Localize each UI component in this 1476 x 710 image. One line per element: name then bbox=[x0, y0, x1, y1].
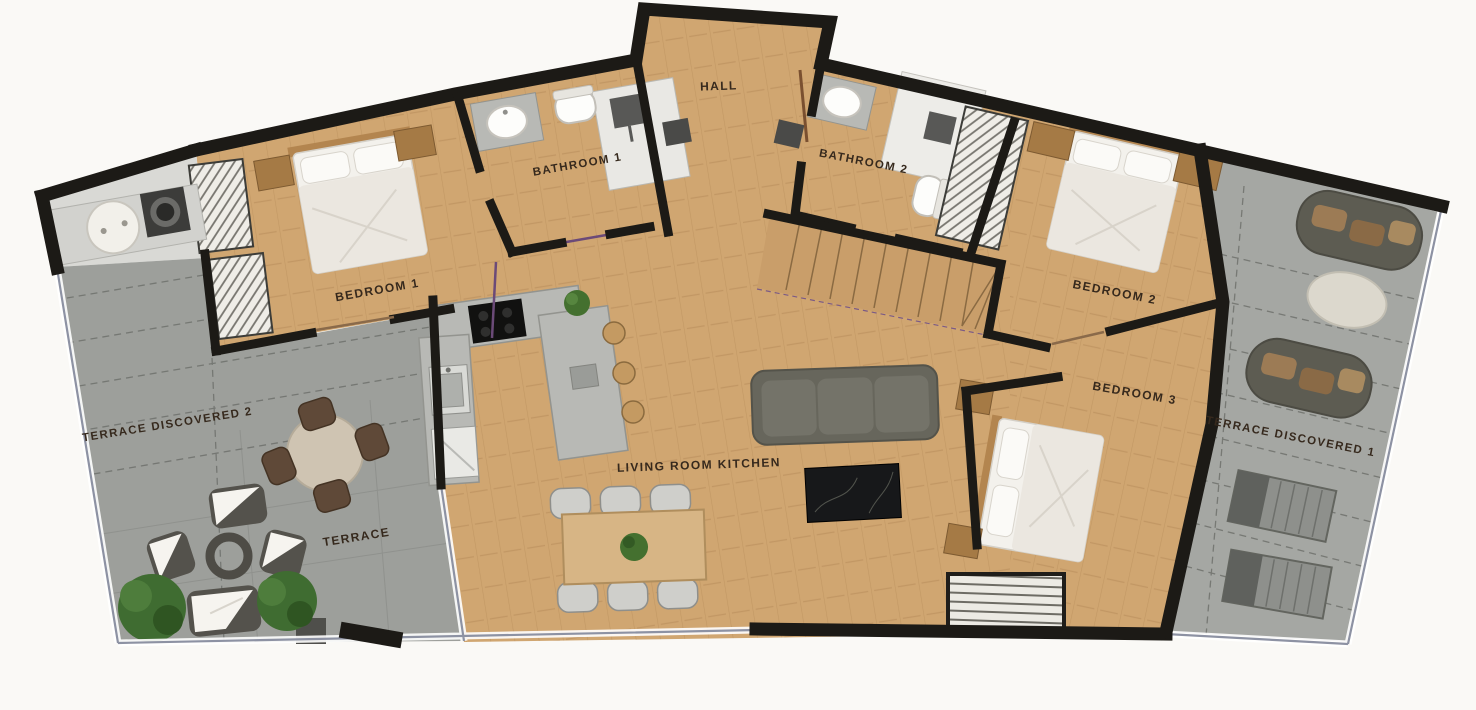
wall-post bbox=[348, 631, 394, 639]
plant bbox=[118, 574, 186, 642]
coffee-table bbox=[805, 464, 902, 523]
floor-plan-page: HALL BATHROOM 1 BATHROOM 2 BEDROOM 1 BED… bbox=[0, 0, 1476, 710]
dining-set bbox=[550, 484, 707, 613]
sofa bbox=[751, 365, 939, 445]
bed bbox=[969, 415, 1104, 565]
cooktop bbox=[468, 299, 527, 344]
nightstand bbox=[394, 125, 437, 161]
exterior-wall-bottom bbox=[756, 629, 1166, 634]
shower-head bbox=[609, 94, 644, 129]
wardrobe bbox=[209, 253, 272, 339]
nightstand bbox=[254, 155, 295, 191]
room-label-hall: HALL bbox=[700, 78, 738, 93]
wall-pier bbox=[662, 118, 692, 146]
floor-plan: HALL BATHROOM 1 BATHROOM 2 BEDROOM 1 BED… bbox=[0, 0, 1476, 710]
island-sink bbox=[570, 364, 599, 389]
wardrobe bbox=[948, 574, 1064, 630]
